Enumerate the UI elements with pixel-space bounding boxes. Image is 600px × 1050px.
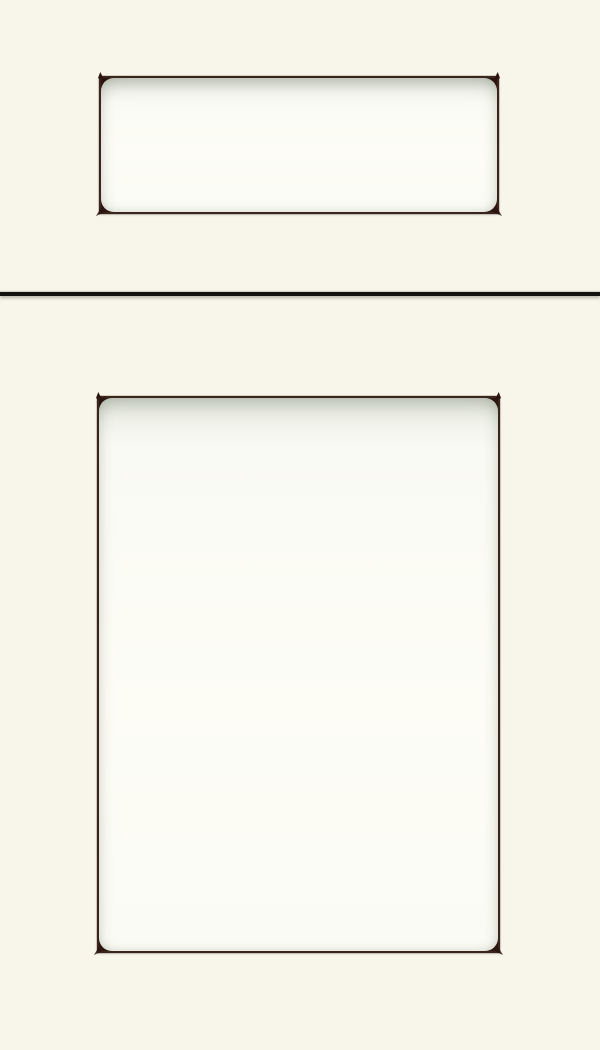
corner-distress-accent bbox=[96, 392, 104, 400]
corner-distress-accent bbox=[493, 392, 501, 400]
door-recessed-panel-frame bbox=[97, 396, 500, 953]
drawer-recessed-panel bbox=[101, 78, 497, 212]
corner-distress-accent bbox=[96, 208, 104, 216]
corner-distress-accent bbox=[495, 947, 503, 955]
drawer-recessed-panel-frame bbox=[99, 76, 499, 214]
cabinet-door-sample-image bbox=[0, 0, 600, 1050]
corner-distress-accent bbox=[98, 72, 106, 80]
door-recessed-panel bbox=[99, 398, 498, 951]
corner-distress-accent bbox=[94, 947, 102, 955]
drawer-door-gap-line bbox=[0, 292, 600, 296]
corner-distress-accent bbox=[494, 208, 502, 216]
corner-distress-accent bbox=[492, 72, 500, 80]
